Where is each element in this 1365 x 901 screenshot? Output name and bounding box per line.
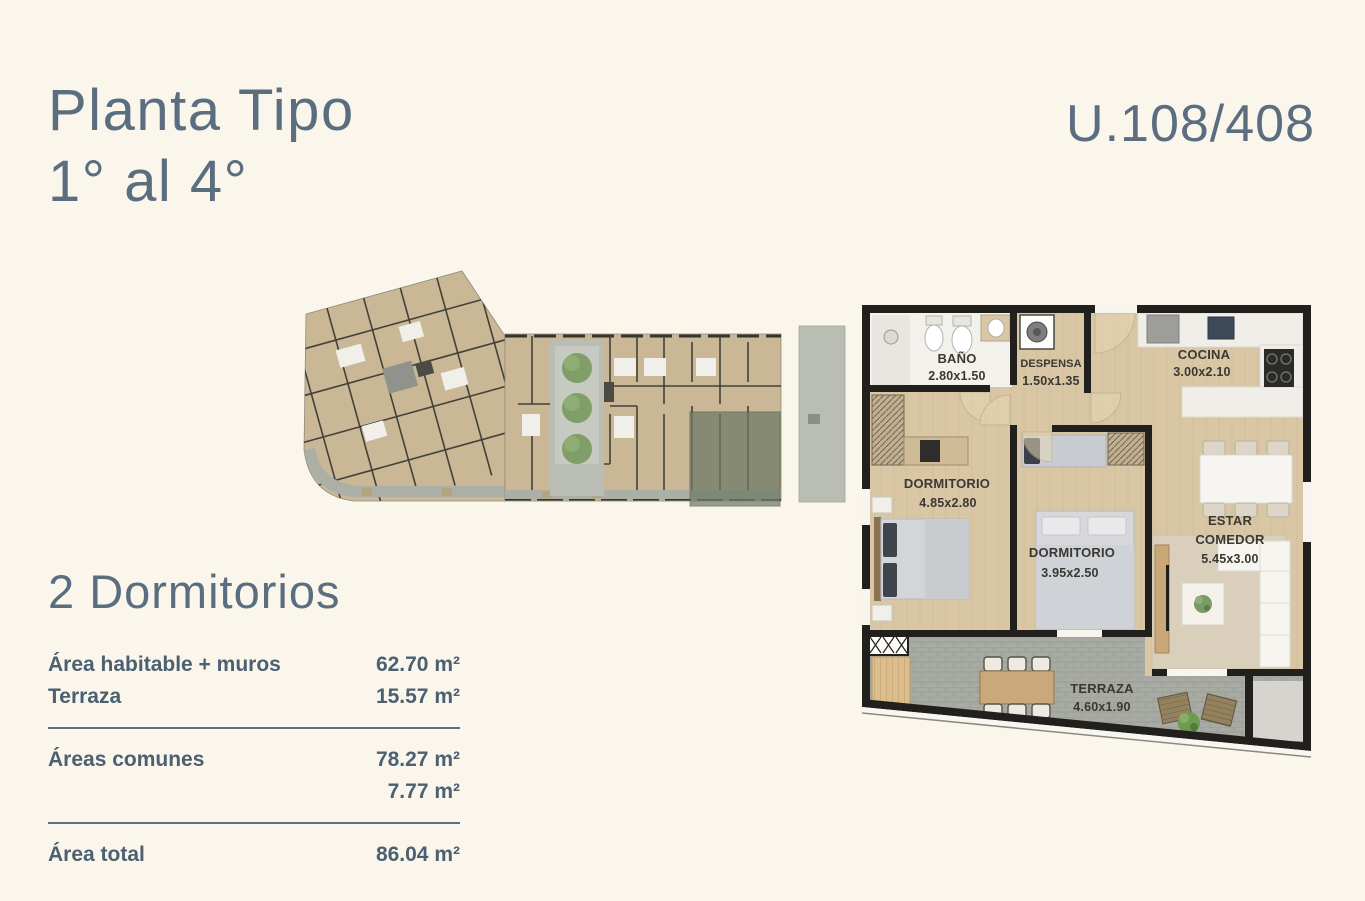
- wardrobe-icon: [872, 395, 904, 465]
- area-row-total: Área total 86.04 m²: [48, 839, 460, 871]
- label-dormitorio-2: DORMITORIO: [1029, 545, 1115, 560]
- tree-icon: [562, 353, 592, 383]
- dims-terraza: 4.60x1.90: [1073, 700, 1130, 714]
- area-value: 62.70 m²: [376, 649, 460, 681]
- page-title: Planta Tipo 1° al 4°: [48, 76, 355, 218]
- area-value: 7.77 m²: [388, 776, 460, 808]
- outdoor-table-icon: [980, 671, 1054, 704]
- label-bano: BAÑO: [937, 351, 976, 366]
- dims-dormitorio-2: 3.95x2.50: [1041, 566, 1098, 580]
- page-title-line1: Planta Tipo: [48, 76, 355, 147]
- shower-icon: [884, 330, 898, 344]
- wood-deck: [872, 657, 910, 707]
- dims-bano: 2.80x1.50: [928, 369, 985, 383]
- area-value: 78.27 m²: [376, 744, 460, 776]
- tree-icon: [562, 393, 592, 423]
- divider: [48, 727, 460, 729]
- room-dormitorio-2: [1022, 433, 1144, 629]
- key-plan-right-garden: [799, 326, 845, 502]
- label-comedor: COMEDOR: [1195, 532, 1265, 547]
- area-label: Área total: [48, 839, 145, 871]
- toilet-icon: [952, 326, 972, 354]
- double-bed-icon: [874, 517, 969, 601]
- room-despensa: [1020, 315, 1054, 349]
- tv-icon: [1166, 565, 1169, 631]
- fridge-icon: [1147, 315, 1179, 343]
- key-plan-highlighted-unit: [690, 412, 780, 506]
- bidet-icon: [925, 325, 943, 351]
- dims-dormitorio-1: 4.85x2.80: [919, 496, 976, 510]
- dims-despensa: 1.50x1.35: [1022, 374, 1079, 388]
- label-terraza: TERRAZA: [1070, 681, 1134, 696]
- dining-table-icon: [1200, 455, 1292, 503]
- dims-estar-comedor: 5.45x3.00: [1201, 552, 1258, 566]
- area-row-comunes-2: 7.77 m²: [48, 776, 460, 808]
- wardrobe-icon: [1108, 433, 1144, 465]
- divider: [48, 822, 460, 824]
- area-row-comunes: Áreas comunes 78.27 m²: [48, 744, 460, 776]
- area-value: 15.57 m²: [376, 681, 460, 713]
- label-cocina: COCINA: [1178, 347, 1231, 362]
- plant-icon: [1194, 595, 1212, 613]
- key-plan-courtyard: [550, 340, 604, 496]
- brochure-page: Planta Tipo 1° al 4° U.108/408: [0, 0, 1365, 901]
- unit-floor-plan: BAÑO 2.80x1.50 DESPENSA 1.50x1.35 COCINA…: [862, 297, 1314, 765]
- area-label: Terraza: [48, 681, 121, 713]
- label-estar: ESTAR: [1208, 513, 1253, 528]
- terrace-alcove: [1253, 681, 1303, 741]
- unit-type-heading: 2 Dormitorios: [48, 564, 460, 619]
- dims-cocina: 3.00x2.10: [1173, 365, 1230, 379]
- building-key-plan: [292, 264, 850, 520]
- tree-icon: [562, 434, 592, 464]
- stove-icon: [1264, 349, 1294, 387]
- page-title-line2: 1° al 4°: [48, 147, 355, 218]
- kitchen-sink-icon: [1208, 317, 1234, 339]
- area-label: Áreas comunes: [48, 744, 204, 776]
- areas-summary: 2 Dormitorios Área habitable + muros 62.…: [48, 564, 460, 901]
- label-despensa: DESPENSA: [1020, 358, 1081, 370]
- sink-icon: [988, 319, 1004, 337]
- area-label: Área habitable + muros: [48, 649, 281, 681]
- label-dormitorio-1: DORMITORIO: [904, 476, 990, 491]
- area-value: 86.04 m²: [376, 839, 460, 871]
- area-row-habitable: Área habitable + muros 62.70 m²: [48, 649, 460, 681]
- unit-number: U.108/408: [1066, 94, 1315, 154]
- area-row-terraza: Terraza 15.57 m²: [48, 681, 460, 713]
